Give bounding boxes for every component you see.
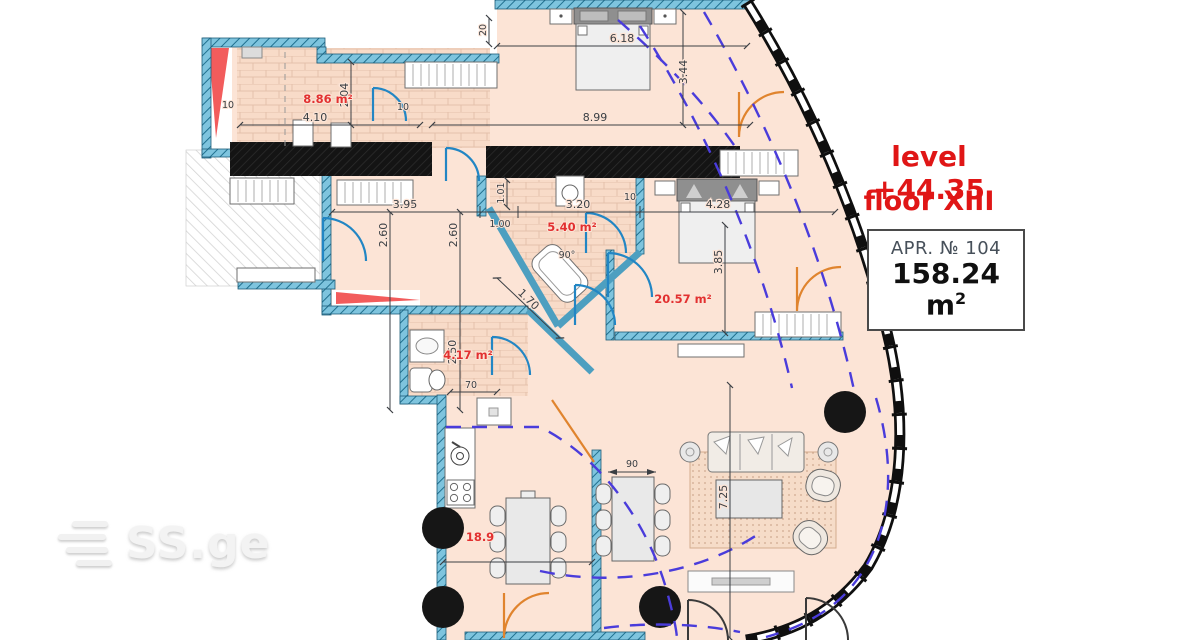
- dim-wall-10c: 10: [624, 192, 636, 203]
- side-table: [818, 442, 838, 462]
- watermark: SS.ge: [58, 518, 270, 569]
- label-tub-angle: 90°: [559, 250, 576, 261]
- label-living-area: 18.9: [466, 530, 494, 544]
- dim-wall-10b: 10: [397, 102, 409, 113]
- label-laundry-area: 8.86 m²: [303, 92, 352, 106]
- dining-table-2: [596, 477, 670, 561]
- pillow: [618, 11, 646, 21]
- boiler: [242, 47, 262, 58]
- watermark-brand: SS.ge: [126, 518, 270, 569]
- dim-hall-depth-a: 2.60: [377, 223, 390, 248]
- dim-table-width: 90: [626, 459, 638, 470]
- pillow: [580, 11, 608, 21]
- side-table: [680, 442, 700, 462]
- dim-bed1-width: 6.18: [610, 32, 635, 45]
- bench: [237, 268, 315, 282]
- dim-bath-niche-b: 1.00: [489, 219, 510, 230]
- dim-wc-width: 70: [465, 380, 477, 391]
- floor-annotation: floor XIII: [838, 186, 1020, 217]
- dim-bed1-total: 8.99: [583, 111, 608, 124]
- dim-living-depth: 7.25: [717, 485, 730, 510]
- apartment-area: 158.24 m2: [871, 259, 1021, 321]
- dim-bed2-depth: 3.85: [712, 250, 725, 275]
- label-bath-main-area: 5.40 m²: [547, 220, 596, 234]
- nightstand: [655, 181, 675, 195]
- ssge-logo-icon: [58, 521, 112, 566]
- dim-bath-width: 3.20: [566, 198, 591, 211]
- dim-bed1-depth: 3.44: [677, 60, 690, 85]
- dim-wall-10a: 10: [222, 100, 234, 111]
- apartment-info-box: APR. № 104 158.24 m2: [867, 229, 1025, 331]
- nightstand: [759, 181, 779, 195]
- dim-wall-20: 20: [478, 24, 489, 36]
- label-bedroom-area: 20.57 m²: [654, 292, 711, 306]
- dim-bath-niche-a: 1.01: [496, 182, 507, 203]
- apartment-number: APR. № 104: [871, 238, 1021, 259]
- dim-laundry-width: 4.10: [303, 111, 328, 124]
- appliance: [331, 123, 351, 147]
- sideboard: [678, 344, 744, 357]
- floorplan-page: 6.18 3.44 8.99 4.10 2.04 20 10 10 10 3.9…: [0, 0, 1200, 640]
- dim-hall-width: 3.95: [393, 198, 418, 211]
- label-bath-small-area: 4.17 m²: [443, 348, 492, 362]
- dim-bed2-width: 4.28: [706, 198, 731, 211]
- dim-hall-depth-b: 2.60: [447, 223, 460, 248]
